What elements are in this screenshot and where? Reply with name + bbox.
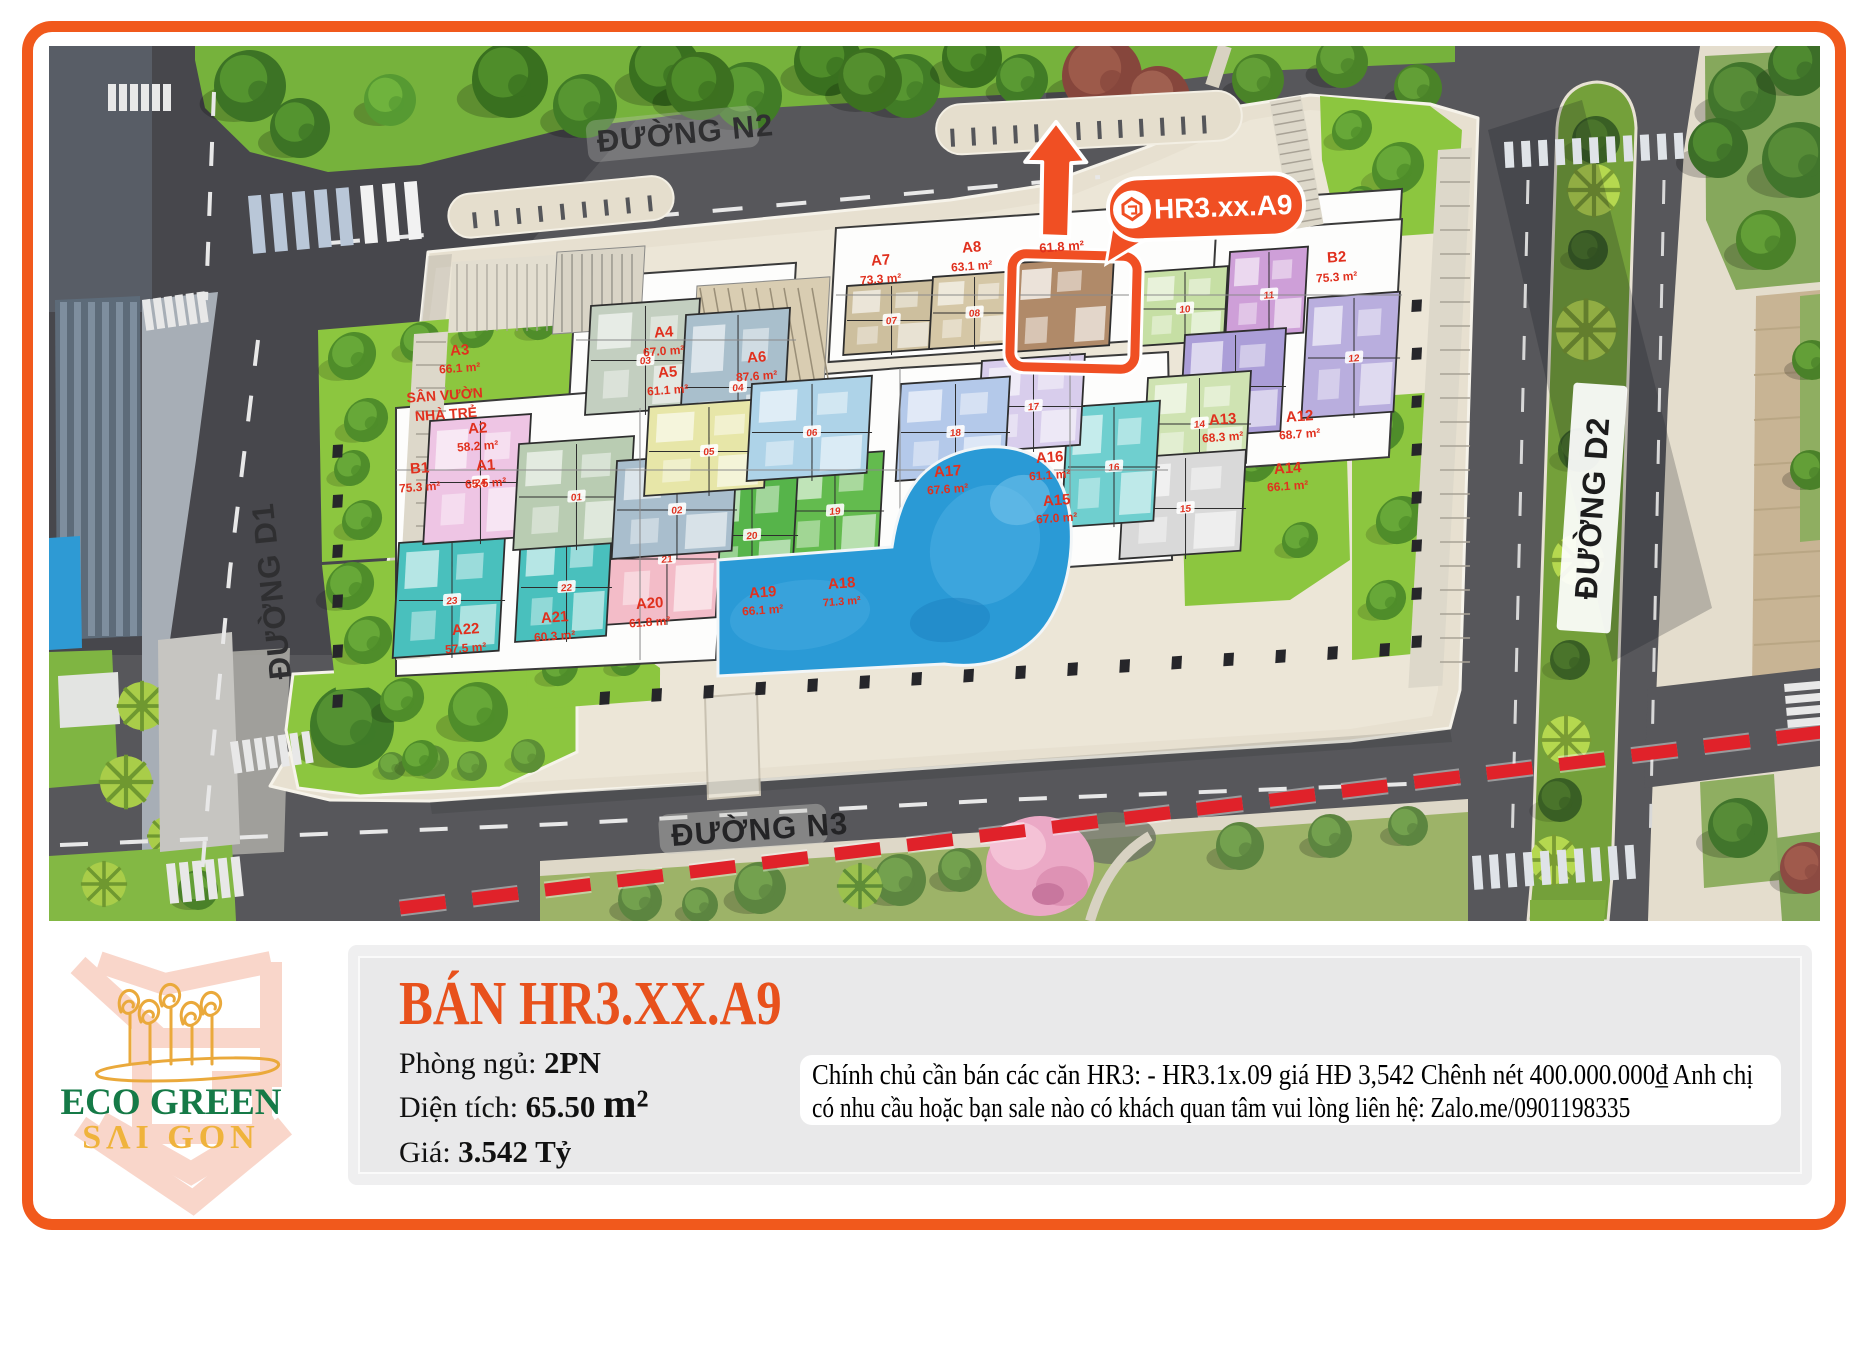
svg-text:57.5 m²: 57.5 m²	[445, 640, 487, 657]
svg-text:06: 06	[806, 428, 818, 440]
svg-text:05: 05	[703, 447, 715, 459]
svg-text:63.1 m²: 63.1 m²	[951, 258, 993, 275]
svg-text:A19: A19	[748, 583, 777, 602]
svg-text:A20: A20	[635, 594, 664, 613]
svg-text:A16: A16	[1035, 448, 1064, 467]
svg-text:A18: A18	[827, 574, 856, 593]
svg-text:65.5 m²: 65.5 m²	[465, 475, 507, 492]
svg-text:68.7 m²: 68.7 m²	[1279, 426, 1321, 443]
svg-text:14: 14	[1194, 419, 1206, 431]
svg-text:16: 16	[1108, 462, 1120, 474]
svg-text:66.1 m²: 66.1 m²	[439, 360, 481, 377]
svg-text:15: 15	[1180, 504, 1192, 516]
svg-text:SΛI GON: SΛI GON	[82, 1119, 259, 1156]
svg-text:11: 11	[1263, 290, 1275, 302]
svg-text:61.1 m²: 61.1 m²	[647, 382, 689, 399]
svg-text:67.0 m²: 67.0 m²	[1036, 510, 1078, 527]
svg-text:A3: A3	[450, 341, 470, 359]
svg-text:58.2 m²: 58.2 m²	[457, 438, 499, 455]
svg-text:A17: A17	[933, 462, 962, 481]
svg-text:01: 01	[571, 492, 583, 504]
svg-text:B1: B1	[410, 459, 430, 477]
svg-text:22: 22	[561, 583, 573, 595]
svg-text:61.8 m²: 61.8 m²	[1039, 237, 1085, 255]
svg-text:A4: A4	[654, 323, 675, 341]
svg-text:02: 02	[671, 505, 683, 517]
svg-text:19: 19	[829, 506, 841, 518]
svg-text:A6: A6	[747, 348, 767, 366]
svg-text:A5: A5	[658, 363, 678, 381]
svg-text:07: 07	[886, 316, 898, 328]
svg-text:73.3 m²: 73.3 m²	[860, 271, 902, 288]
svg-text:20: 20	[746, 531, 758, 543]
svg-text:A2: A2	[468, 419, 488, 437]
svg-text:A8: A8	[962, 238, 982, 256]
svg-text:87.6 m²: 87.6 m²	[736, 368, 778, 385]
svg-text:18: 18	[950, 428, 962, 440]
svg-text:68.3 m²: 68.3 m²	[1202, 429, 1244, 446]
svg-text:75.3 m²: 75.3 m²	[1316, 269, 1358, 286]
svg-text:A22: A22	[451, 620, 480, 639]
svg-text:12: 12	[1348, 353, 1360, 365]
svg-text:60.3 m²: 60.3 m²	[534, 628, 576, 645]
svg-text:ECO GREEN: ECO GREEN	[60, 1082, 281, 1123]
svg-text:A21: A21	[540, 608, 569, 627]
svg-text:75.3 m²: 75.3 m²	[399, 479, 441, 496]
svg-text:67.6 m²: 67.6 m²	[927, 481, 969, 498]
svg-text:66.1 m²: 66.1 m²	[1267, 478, 1309, 495]
svg-text:61.8 m²: 61.8 m²	[629, 614, 671, 631]
svg-text:17: 17	[1028, 402, 1040, 414]
svg-text:A12: A12	[1285, 407, 1314, 426]
svg-text:A1: A1	[476, 456, 496, 474]
svg-text:66.1 m²: 66.1 m²	[742, 602, 784, 619]
svg-text:23: 23	[446, 596, 458, 608]
svg-text:08: 08	[969, 308, 981, 320]
svg-text:A13: A13	[1208, 410, 1237, 429]
svg-text:A7: A7	[871, 251, 891, 269]
svg-text:A14: A14	[1273, 459, 1302, 478]
svg-text:67.0 m²: 67.0 m²	[643, 343, 685, 360]
svg-text:61.1 m²: 61.1 m²	[1029, 467, 1071, 484]
svg-text:04: 04	[732, 383, 744, 395]
svg-text:A15: A15	[1042, 491, 1071, 510]
svg-text:B2: B2	[1327, 248, 1347, 266]
svg-text:10: 10	[1179, 304, 1191, 316]
svg-text:HR3.xx.A9: HR3.xx.A9	[1154, 189, 1294, 225]
